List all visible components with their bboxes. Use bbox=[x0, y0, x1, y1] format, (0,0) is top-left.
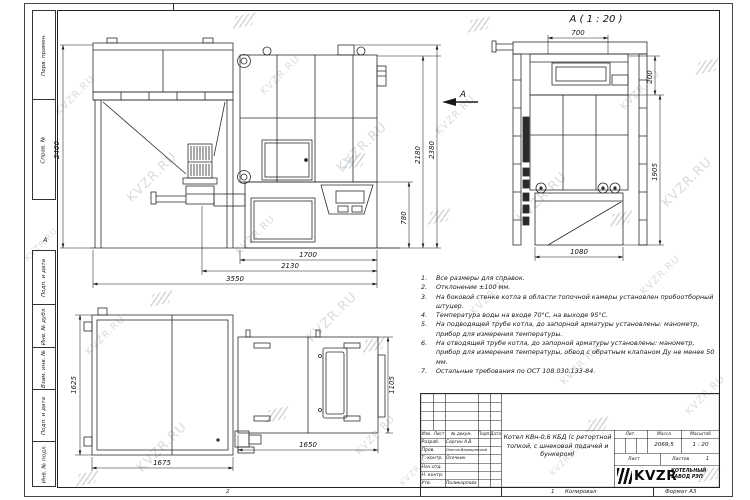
tb-role-razrab: Разраб. bbox=[422, 440, 440, 445]
view-arrow-label: А bbox=[459, 90, 466, 100]
strip-divider bbox=[420, 488, 421, 497]
tb-role-utv: Утв. bbox=[422, 481, 432, 486]
note-item: 3.На боковой стенке котла в области топо… bbox=[421, 293, 719, 312]
note-text: Температура воды на входе 70°С, на выход… bbox=[436, 311, 719, 320]
tb-sheets-value: 1 bbox=[706, 457, 709, 462]
plan-boiler-width-dim: 1650 bbox=[299, 441, 317, 449]
tb-name-utv: Поликарпова bbox=[446, 481, 477, 486]
front-body-height-dim: 2180 bbox=[414, 146, 422, 164]
tb-name-prov: Онегов-Верещинский bbox=[446, 448, 487, 452]
top-zone-tick bbox=[173, 3, 174, 11]
title-block: Изм. Лист № докум. Подп. Дата Разраб. Се… bbox=[420, 393, 720, 488]
note-number: 3. bbox=[421, 293, 436, 312]
tb-name-razrab: Сергин А.В. bbox=[446, 440, 473, 445]
note-item: 7.Остальные требования по ОСТ 108.030.13… bbox=[421, 367, 719, 376]
front-width-total-dim: 3550 bbox=[226, 275, 244, 283]
margin-field-inv-dubl: Инв. № дубл. bbox=[32, 304, 56, 348]
tb-role-tkontr: Т. контр. bbox=[422, 456, 443, 461]
plan-bunker-width-dim: 1675 bbox=[153, 459, 171, 467]
tb-role-prov: Пров. bbox=[422, 448, 435, 453]
note-item: 2.Отклонение ±100 мм. bbox=[421, 283, 719, 292]
note-text: Отклонение ±100 мм. bbox=[436, 283, 719, 292]
margin-field-inv-podl: Инв. № подл. bbox=[32, 441, 56, 487]
margin-field-label: Справ. № bbox=[41, 136, 47, 163]
zone-number-2: 2 bbox=[226, 489, 230, 495]
tb-scale-label: Масштаб bbox=[681, 432, 720, 437]
view-direction-arrow: А bbox=[436, 86, 482, 116]
plan-bunker-depth-dim: 1625 bbox=[70, 376, 78, 394]
tb-col-izm: Изм. bbox=[420, 431, 433, 436]
margin-field-perv-primen: Перв. примен. bbox=[32, 10, 56, 100]
side-top-height-dim: 200 bbox=[646, 70, 654, 84]
tb-col-podp: Подп. bbox=[478, 431, 490, 436]
margin-field-label: Взам. инв. № bbox=[41, 350, 47, 388]
tb-sheet-label: Лист bbox=[628, 457, 640, 462]
side-right-height-dim: 1905 bbox=[651, 163, 659, 181]
front-width-boiler-dim: 1700 bbox=[299, 251, 317, 259]
note-number: 1. bbox=[421, 274, 436, 283]
copied-label: Копировал bbox=[565, 489, 596, 495]
margin-field-label: Подп. и дата bbox=[41, 258, 47, 296]
note-item: 6.На отводящей трубе котла, до запорной … bbox=[421, 339, 719, 367]
note-number: 4. bbox=[421, 311, 436, 320]
note-number: 5. bbox=[421, 320, 436, 339]
side-view-title: А ( 1 : 20 ) bbox=[569, 14, 623, 25]
technical-notes: 1.Все размеры для справок. 2.Отклонение … bbox=[421, 274, 719, 376]
front-width-mid-dim: 2130 bbox=[281, 262, 299, 270]
tb-col-list: Лист bbox=[433, 431, 445, 436]
note-number: 7. bbox=[421, 367, 436, 376]
tb-col-dokum: № докум. bbox=[445, 431, 478, 436]
tb-role-nachotd: Нач.отд. bbox=[422, 465, 443, 470]
margin-field-vzam-inv: Взам. инв. № bbox=[32, 347, 56, 390]
strip-divider bbox=[501, 488, 502, 497]
note-text: На подводящей трубе котла, до запорной а… bbox=[436, 320, 719, 339]
side-view-drawing: А ( 1 : 20 ) bbox=[488, 5, 720, 271]
note-text: На отводящей трубе котла, до запорной ар… bbox=[436, 339, 719, 367]
margin-field-label: Подп. и дата bbox=[41, 396, 47, 434]
kvzr-logo-icon bbox=[617, 468, 632, 484]
note-item: 1.Все размеры для справок. bbox=[421, 274, 719, 283]
side-top-width-dim: 700 bbox=[571, 29, 585, 37]
zone-letter-a: А bbox=[43, 236, 47, 244]
note-text: Все размеры для справок. bbox=[436, 274, 719, 283]
tb-scale-value: 1 : 20 bbox=[681, 442, 720, 448]
margin-field-podp-data-2: Подп. и дата bbox=[32, 389, 56, 442]
drawing-sheet: KVZR.RU KVZR.RU KVZR.RU KVZR.RU KVZR.RU … bbox=[0, 0, 750, 500]
note-text: Остальные требования по ОСТ 108.030.133-… bbox=[436, 367, 719, 376]
margin-field-podp-data-1: Подп. и дата bbox=[32, 250, 56, 305]
tb-mass-value: 2069,5 bbox=[647, 442, 681, 448]
front-total-height-dim: 2380 bbox=[428, 141, 436, 159]
tb-role-nkontr: Н. контр. bbox=[422, 473, 444, 478]
plan-view-drawing: 1625 1675 1105 1650 bbox=[58, 300, 420, 482]
note-item: 5.На подводящей трубе котла, до запорной… bbox=[421, 320, 719, 339]
tb-name-tkontr: Осечкин bbox=[446, 456, 466, 461]
tb-sheets-label: Листов bbox=[672, 457, 689, 462]
front-bunker-height-dim: 2400 bbox=[53, 141, 61, 159]
margin-field-label: Перв. примен. bbox=[41, 34, 47, 76]
tb-col-data: Дата bbox=[490, 431, 501, 436]
company-name: КОТЕЛЬНЫЙ ЗАВОД РЭП bbox=[671, 469, 719, 480]
side-bottom-width-dim: 1080 bbox=[570, 248, 588, 256]
note-item: 4.Температура воды на входе 70°С, на вых… bbox=[421, 311, 719, 320]
strip-divider bbox=[653, 488, 654, 497]
plan-boiler-depth-dim: 1105 bbox=[388, 376, 396, 394]
tb-mass-label: Масса bbox=[647, 432, 681, 437]
zone-number-1: 1 bbox=[551, 489, 555, 495]
margin-field-label: Инв. № дубл. bbox=[41, 307, 47, 345]
tb-lit-label: Лит. bbox=[614, 432, 647, 437]
front-view-drawing: 2400 780 2180 2380 1700 2130 3550 bbox=[55, 28, 435, 296]
margin-field-label: Инв. № подл. bbox=[41, 445, 47, 484]
document-title: Котел КВн-0,6 КБД (с ретортной топкой, с… bbox=[503, 434, 612, 460]
front-base-height-dim: 780 bbox=[400, 211, 408, 225]
format-label: Формат А3 bbox=[665, 489, 696, 495]
note-text: На боковой стенке котла в области топочн… bbox=[436, 293, 719, 312]
note-number: 6. bbox=[421, 339, 436, 367]
note-number: 2. bbox=[421, 283, 436, 292]
